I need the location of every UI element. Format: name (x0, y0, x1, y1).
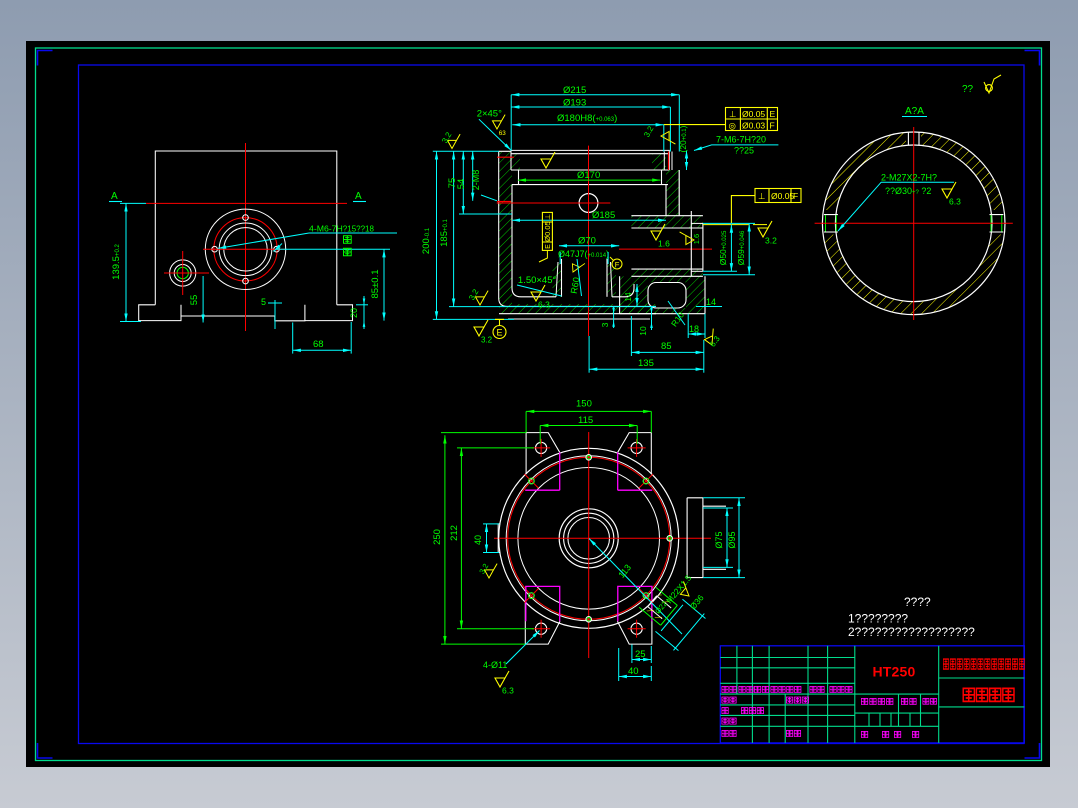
svg-text:E: E (770, 109, 776, 119)
svg-text:2×45°: 2×45° (477, 109, 502, 120)
svg-text:◎: ◎ (729, 121, 737, 131)
svg-text:212: 212 (449, 525, 460, 541)
svg-text:115: 115 (578, 415, 593, 426)
svg-text:40: 40 (473, 535, 483, 545)
svg-text:6.3: 6.3 (949, 197, 961, 207)
svg-text:14: 14 (706, 297, 716, 307)
svg-text:Ø95: Ø95 (727, 531, 737, 548)
svg-text:A: A (355, 191, 362, 202)
svg-text:14: 14 (623, 292, 633, 302)
svg-text:6.3: 6.3 (502, 686, 514, 696)
svg-text:F: F (793, 191, 798, 201)
svg-text:68: 68 (313, 339, 324, 350)
svg-text:Ø170: Ø170 (577, 170, 600, 181)
svg-text:????: ???? (904, 595, 931, 609)
svg-text:1.50×45°: 1.50×45° (518, 275, 557, 286)
svg-text:85±0.1: 85±0.1 (370, 270, 381, 299)
svg-text:1.6: 1.6 (658, 239, 670, 249)
svg-text:1.6: 1.6 (692, 234, 701, 244)
svg-text:F: F (770, 121, 775, 131)
svg-text:40: 40 (628, 666, 639, 677)
svg-text:⊥: ⊥ (545, 214, 552, 220)
svg-text:2-M27X2-7H?: 2-M27X2-7H? (881, 173, 937, 183)
svg-text:7-M6-7H?20: 7-M6-7H?20 (716, 135, 766, 145)
svg-text:⊥: ⊥ (729, 109, 737, 119)
svg-text:E: E (545, 244, 552, 249)
svg-text:HT250: HT250 (873, 664, 916, 680)
svg-text:85: 85 (661, 341, 672, 352)
svg-text:??Ø30+? ?2: ??Ø30+? ?2 (885, 186, 931, 196)
svg-text:Ø185: Ø185 (592, 210, 615, 221)
svg-text:1????????: 1???????? (848, 612, 908, 626)
svg-text:Ø75: Ø75 (714, 531, 724, 548)
svg-text:6.3: 6.3 (538, 300, 550, 310)
svg-text:150: 150 (576, 399, 592, 410)
svg-text:Ø0.05: Ø0.05 (543, 221, 552, 241)
svg-text:⊥: ⊥ (758, 191, 766, 201)
svg-text:2-M8: 2-M8 (471, 170, 481, 191)
svg-text:E: E (496, 328, 502, 338)
svg-text:20: 20 (349, 308, 359, 318)
svg-text:A: A (111, 191, 118, 202)
svg-text:135: 135 (638, 358, 654, 369)
svg-text:Ø70: Ø70 (578, 236, 596, 247)
svg-text:250: 250 (432, 529, 443, 545)
svg-text:4-M6-7H?15??18: 4-M6-7H?15??18 (309, 224, 374, 234)
svg-text:55: 55 (189, 295, 200, 306)
svg-text:3: 3 (600, 322, 610, 327)
svg-text:4-Ø11: 4-Ø11 (483, 660, 507, 670)
svg-text:??: ?? (962, 84, 974, 95)
svg-text:10: 10 (638, 326, 648, 336)
svg-text:63: 63 (499, 130, 507, 137)
svg-text:5: 5 (261, 297, 266, 307)
svg-text:Ø0.05: Ø0.05 (771, 191, 794, 201)
svg-text:A?A: A?A (905, 106, 924, 117)
svg-text:??25: ??25 (734, 145, 754, 155)
svg-text:Ø0.03: Ø0.03 (742, 121, 765, 131)
svg-text:25: 25 (635, 649, 646, 660)
svg-text:3.2: 3.2 (765, 236, 777, 246)
svg-text:F: F (615, 260, 620, 269)
svg-text:2??????????????????: 2?????????????????? (848, 625, 975, 639)
svg-text:3.2: 3.2 (481, 336, 493, 345)
svg-text:54: 54 (456, 179, 467, 190)
svg-text:Ø0.05: Ø0.05 (742, 109, 765, 119)
svg-text:18: 18 (689, 324, 699, 334)
